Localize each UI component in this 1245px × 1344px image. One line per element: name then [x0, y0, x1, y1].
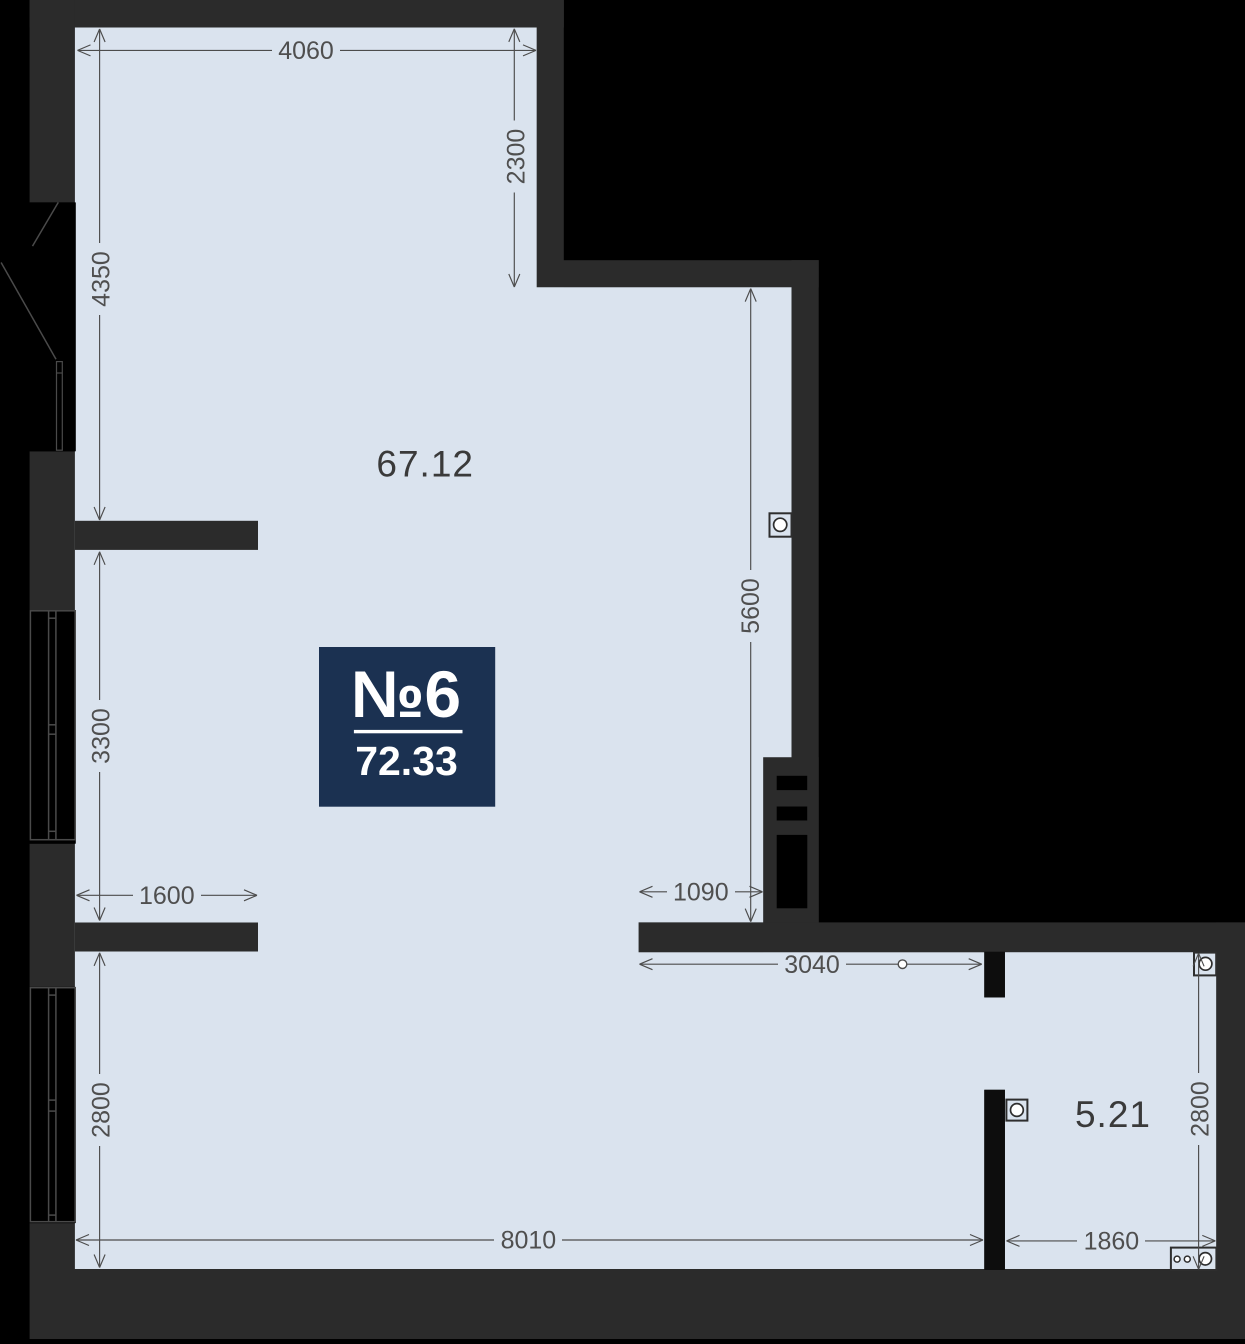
svg-text:2800: 2800 [88, 1082, 116, 1138]
svg-text:4060: 4060 [278, 37, 334, 65]
svg-text:3300: 3300 [88, 708, 116, 764]
svg-text:72.33: 72.33 [355, 738, 458, 784]
svg-text:1860: 1860 [1084, 1228, 1140, 1256]
svg-text:3040: 3040 [784, 951, 840, 979]
svg-text:5600: 5600 [737, 578, 765, 634]
svg-text:8010: 8010 [501, 1227, 557, 1255]
svg-text:№6: №6 [351, 657, 461, 731]
svg-text:5.21: 5.21 [1075, 1094, 1151, 1135]
svg-text:1090: 1090 [673, 879, 729, 907]
svg-text:2300: 2300 [503, 129, 531, 185]
svg-text:67.12: 67.12 [376, 444, 474, 485]
svg-text:2800: 2800 [1187, 1081, 1215, 1137]
svg-text:1600: 1600 [139, 882, 195, 910]
svg-text:4350: 4350 [88, 251, 116, 307]
